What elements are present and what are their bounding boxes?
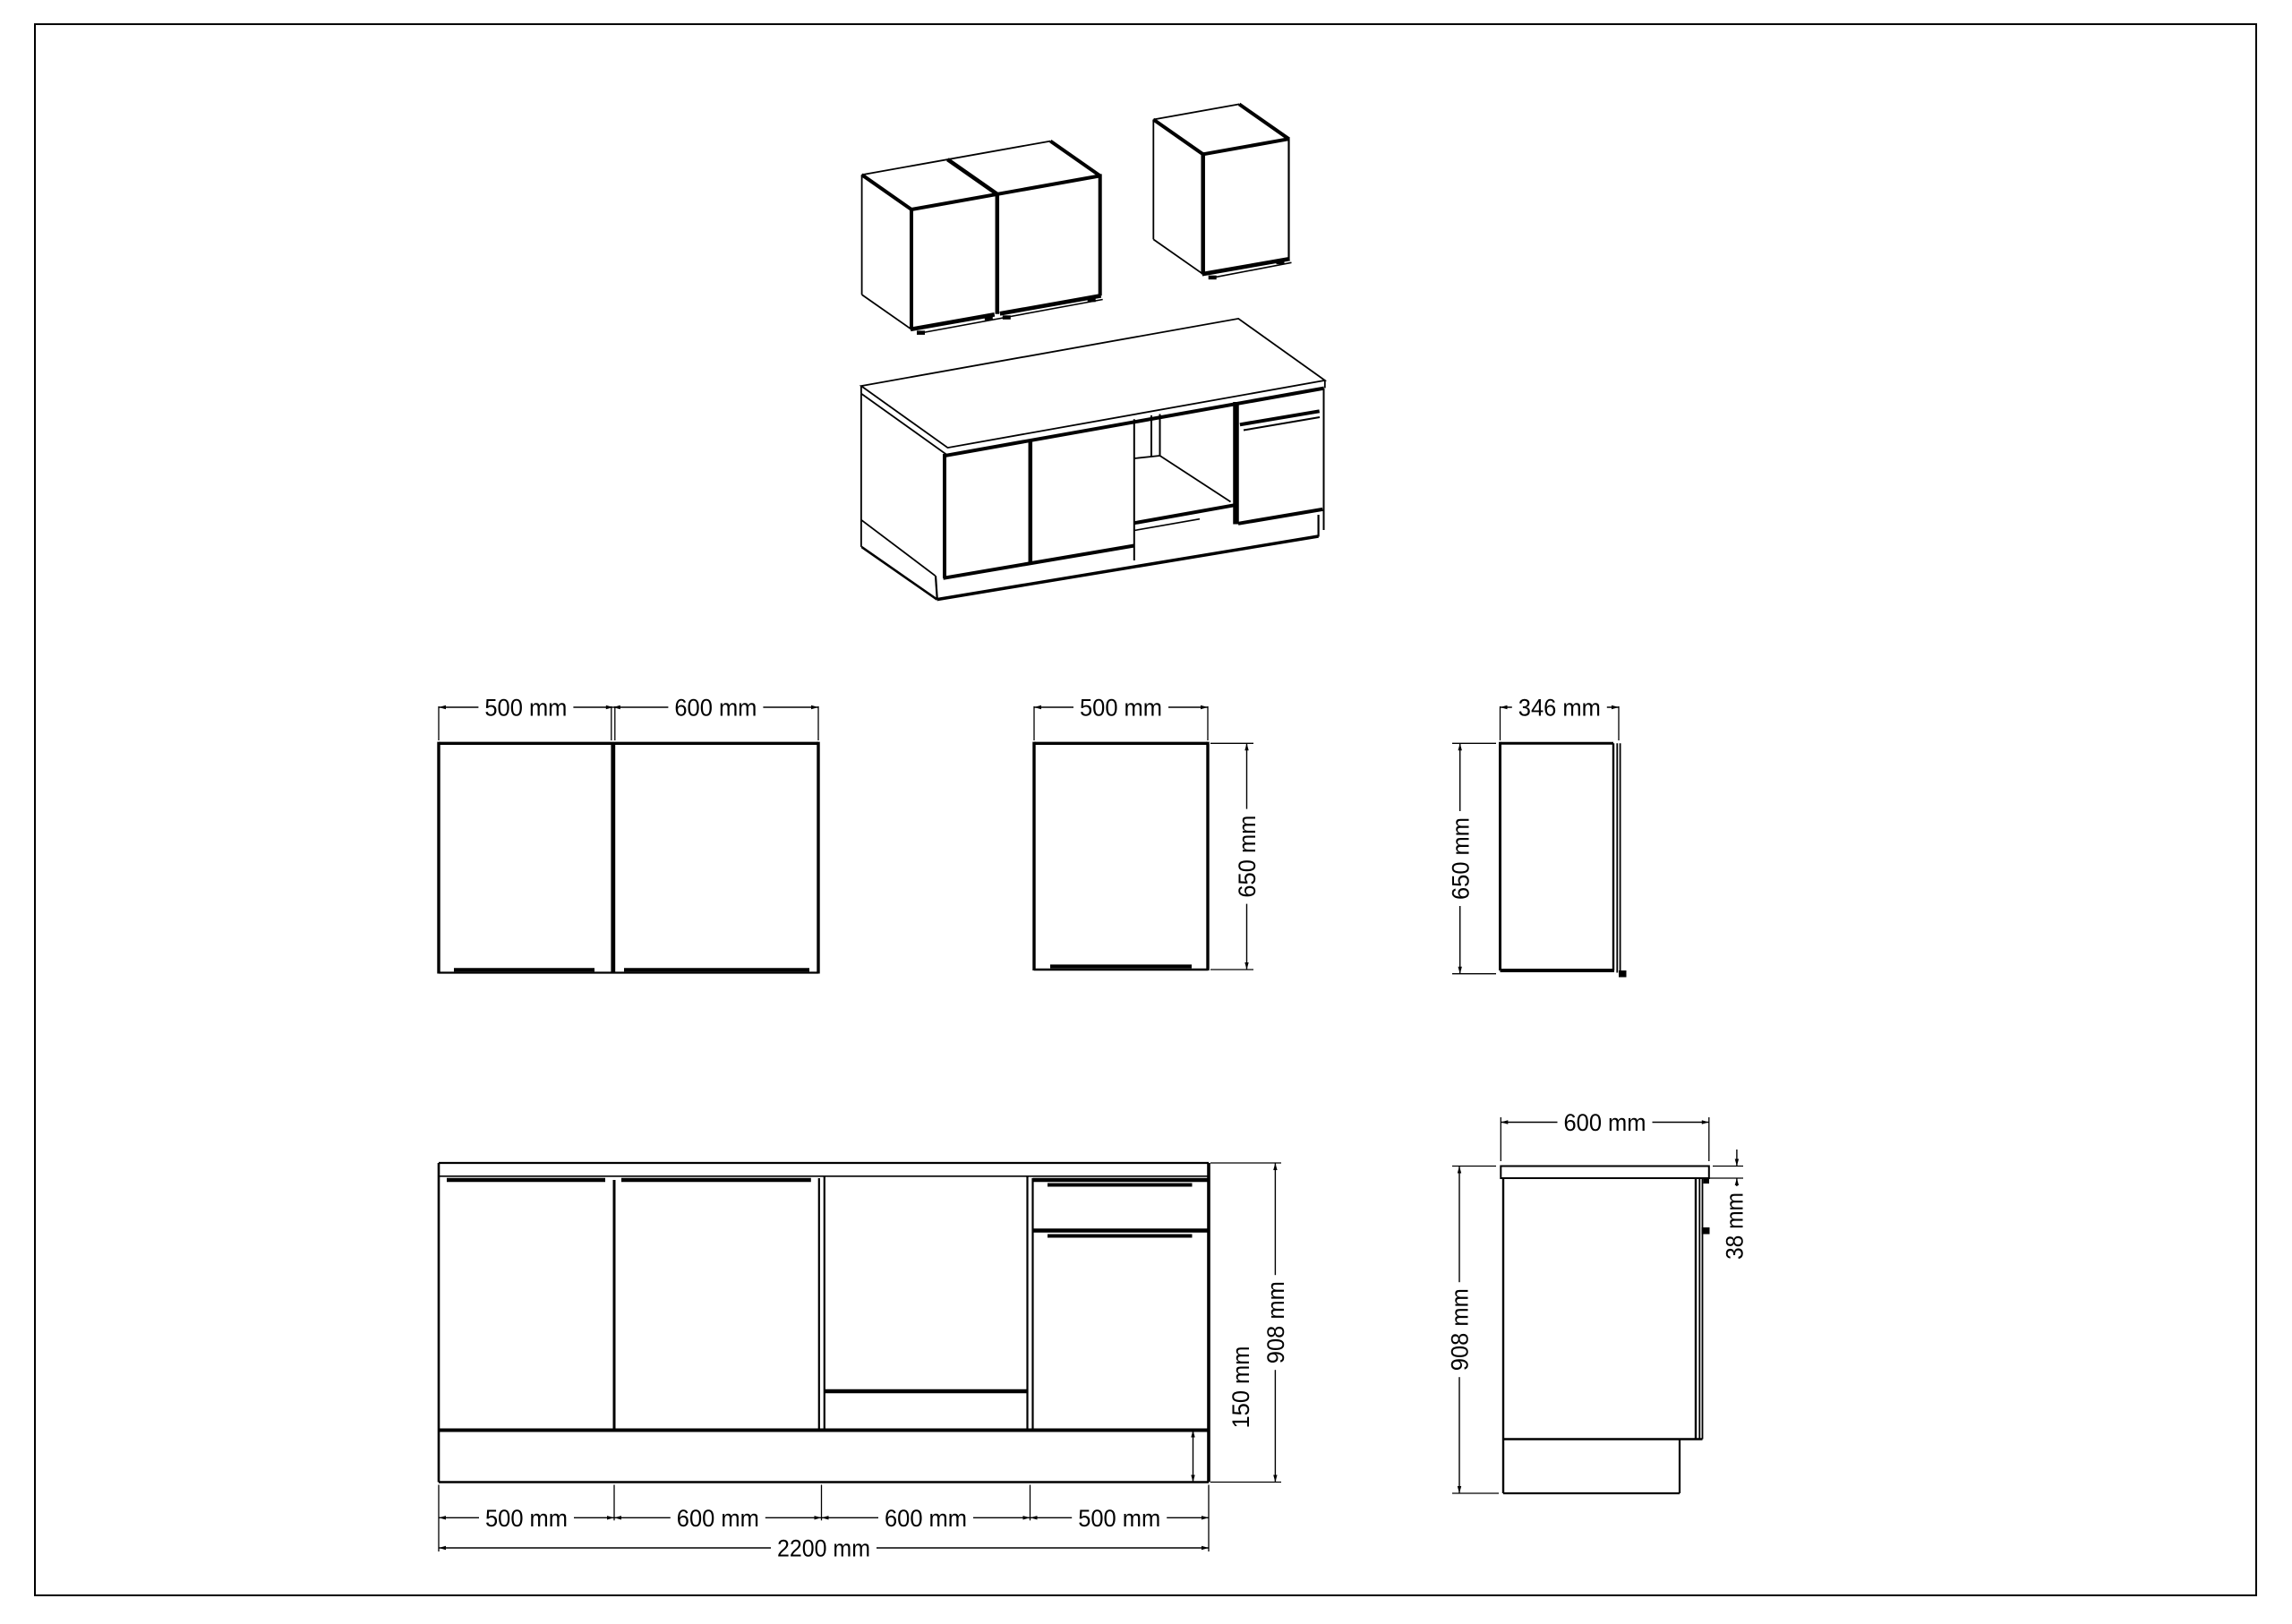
svg-text:500 mm: 500 mm xyxy=(485,1505,568,1532)
svg-text:650 mm: 650 mm xyxy=(1447,817,1474,900)
svg-text:500 mm: 500 mm xyxy=(1078,1505,1160,1532)
svg-text:600 mm: 600 mm xyxy=(674,695,757,722)
svg-text:500 mm: 500 mm xyxy=(1080,695,1162,722)
svg-text:650 mm: 650 mm xyxy=(1234,816,1261,898)
svg-text:600 mm: 600 mm xyxy=(885,1505,967,1532)
svg-text:600 mm: 600 mm xyxy=(1564,1109,1646,1136)
svg-text:600 mm: 600 mm xyxy=(677,1505,759,1532)
svg-text:346 mm: 346 mm xyxy=(1518,695,1601,722)
svg-text:150 mm: 150 mm xyxy=(1227,1346,1254,1429)
svg-text:38 mm: 38 mm xyxy=(1722,1192,1749,1260)
svg-text:2200 mm: 2200 mm xyxy=(777,1535,870,1562)
svg-text:500 mm: 500 mm xyxy=(484,695,567,722)
svg-text:908 mm: 908 mm xyxy=(1262,1281,1289,1363)
svg-text:908 mm: 908 mm xyxy=(1447,1288,1474,1371)
